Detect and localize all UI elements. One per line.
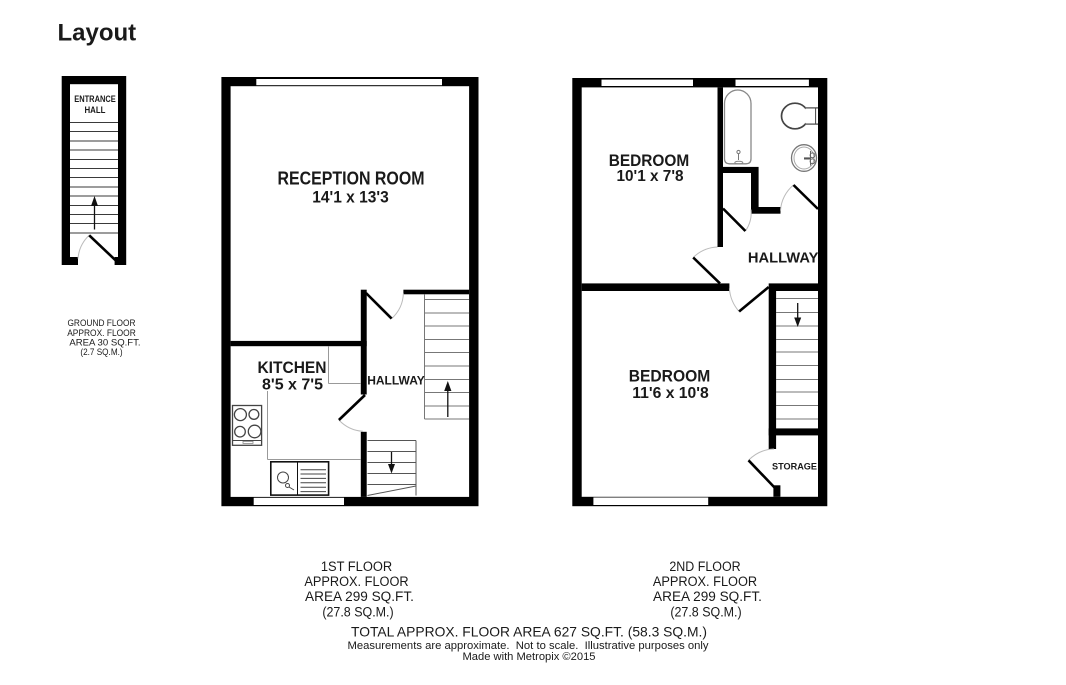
svg-text:HALLWAY: HALLWAY: [748, 251, 819, 267]
svg-text:10'1 x 7'8: 10'1 x 7'8: [617, 168, 684, 185]
svg-text:BEDROOM: BEDROOM: [629, 367, 711, 386]
svg-text:APPROX. FLOOR: APPROX. FLOOR: [304, 574, 409, 589]
svg-text:HALL: HALL: [85, 105, 106, 115]
svg-text:BEDROOM: BEDROOM: [609, 151, 690, 170]
svg-text:HALLWAY: HALLWAY: [367, 374, 425, 388]
svg-text:8'5 x 7'5: 8'5 x 7'5: [262, 377, 323, 394]
svg-text:APPROX. FLOOR: APPROX. FLOOR: [67, 328, 136, 338]
svg-text:KITCHEN: KITCHEN: [257, 358, 326, 377]
svg-text:Made with Metropix ©2015: Made with Metropix ©2015: [463, 651, 596, 663]
svg-text:11'6 x 10'8: 11'6 x 10'8: [632, 385, 709, 402]
svg-text:GROUND FLOOR: GROUND FLOOR: [67, 318, 135, 328]
svg-text:AREA 299 SQ.FT.: AREA 299 SQ.FT.: [305, 589, 414, 604]
svg-text:RECEPTION ROOM: RECEPTION ROOM: [278, 168, 425, 188]
svg-text:2ND FLOOR: 2ND FLOOR: [669, 559, 741, 574]
svg-text:ENTRANCE: ENTRANCE: [74, 94, 116, 104]
svg-text:(2.7 SQ.M.): (2.7 SQ.M.): [80, 347, 122, 357]
svg-text:AREA 30 SQ.FT.: AREA 30 SQ.FT.: [69, 338, 140, 348]
svg-text:14'1 x 13'3: 14'1 x 13'3: [312, 188, 389, 207]
svg-text:APPROX. FLOOR: APPROX. FLOOR: [653, 574, 758, 589]
svg-text:AREA 299 SQ.FT.: AREA 299 SQ.FT.: [653, 589, 762, 604]
svg-text:1ST FLOOR: 1ST FLOOR: [321, 559, 393, 574]
svg-text:STORAGE: STORAGE: [772, 462, 817, 473]
svg-text:Layout: Layout: [58, 20, 137, 47]
svg-text:(27.8 SQ.M.): (27.8 SQ.M.): [670, 605, 741, 620]
svg-text:TOTAL APPROX. FLOOR AREA 627 S: TOTAL APPROX. FLOOR AREA 627 SQ.FT. (58.…: [351, 625, 707, 640]
svg-text:(27.8 SQ.M.): (27.8 SQ.M.): [322, 605, 393, 620]
